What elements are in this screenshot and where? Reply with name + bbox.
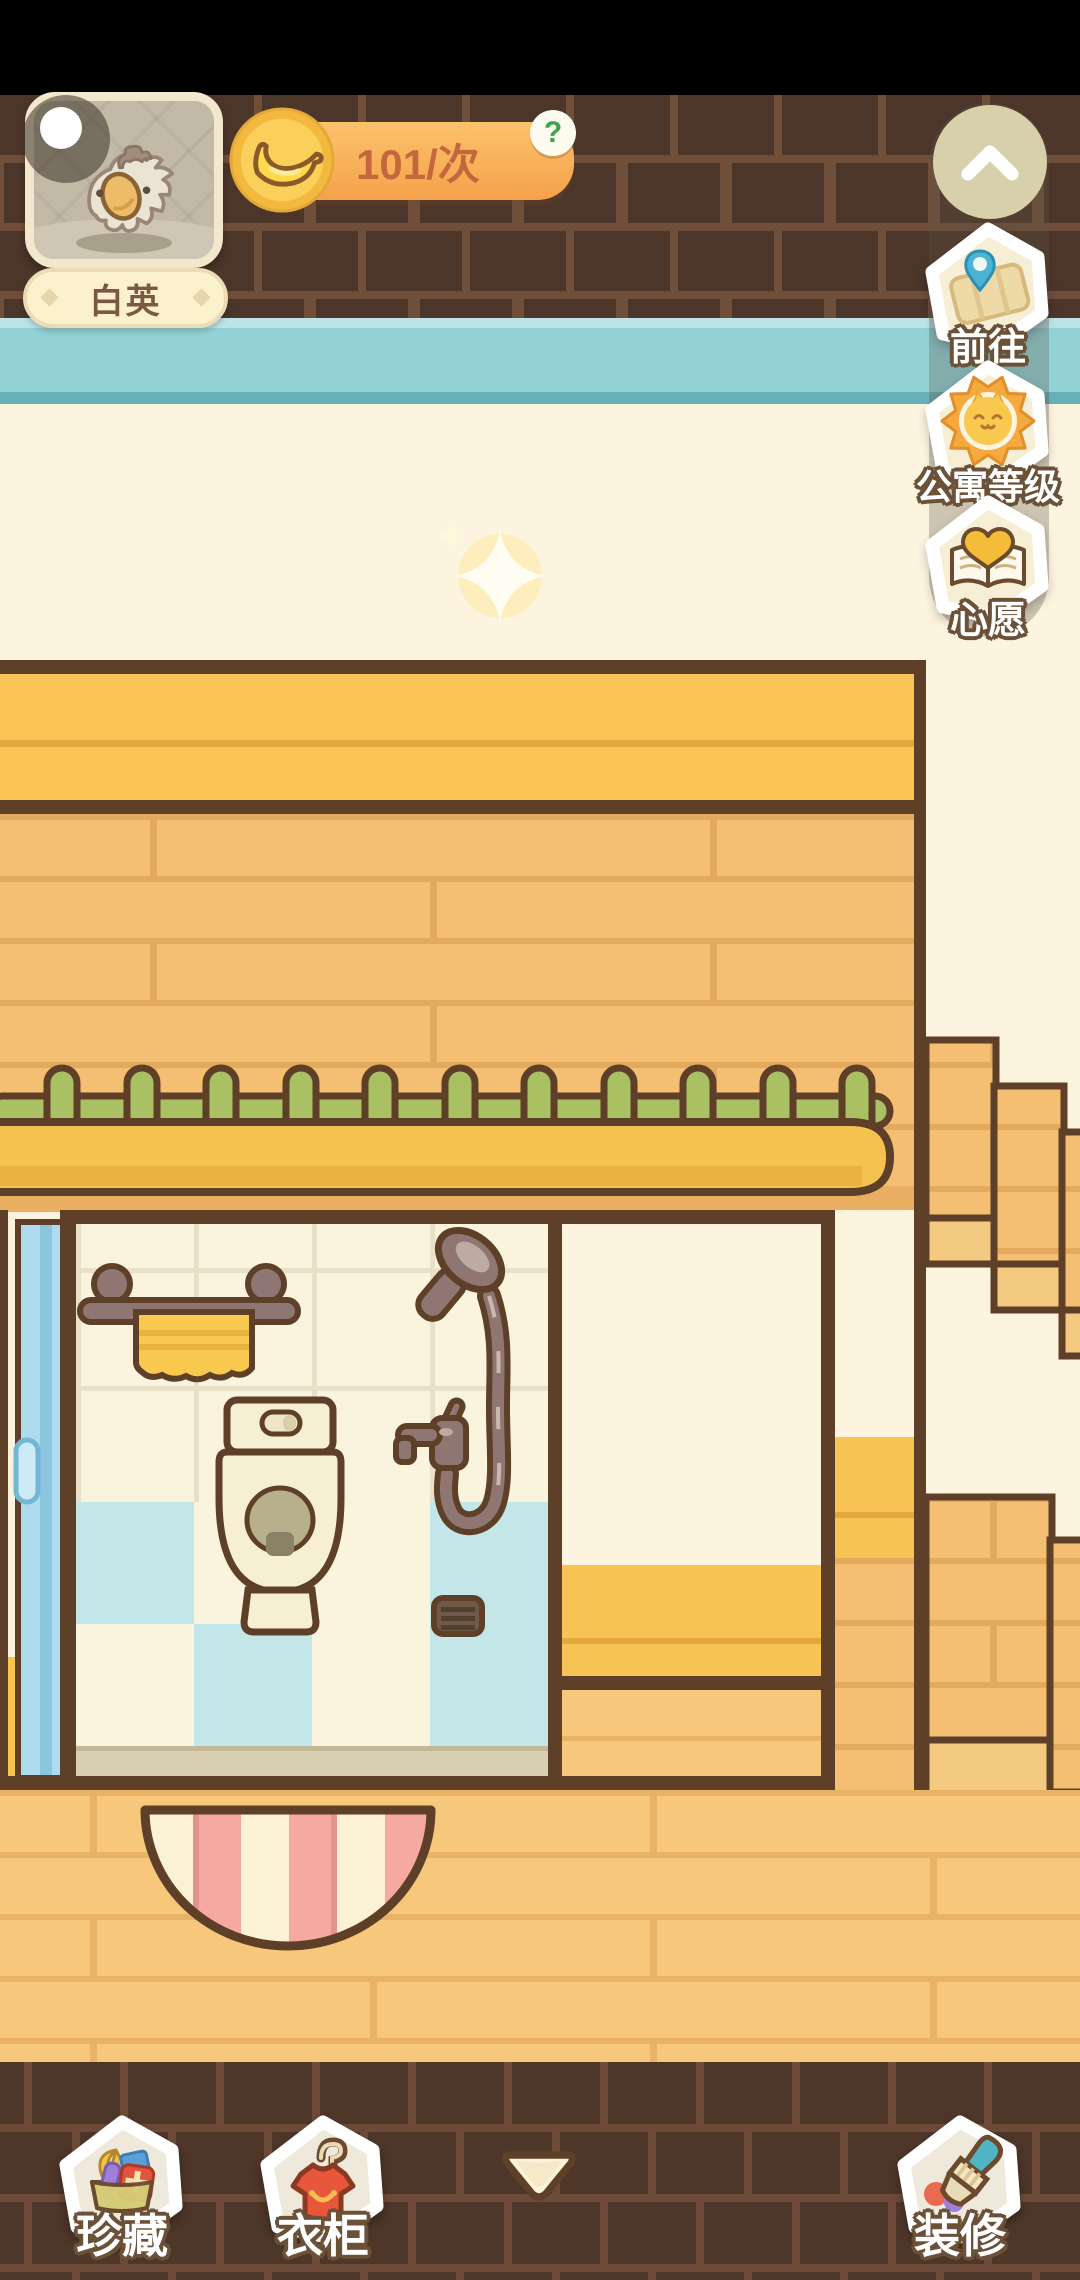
floor-drain	[434, 1598, 482, 1634]
door-handle	[16, 1440, 38, 1502]
bottom-menu-label: 装修	[865, 2200, 1055, 2266]
player-name-plate: 白英	[23, 268, 228, 328]
banana-counter[interactable]: 101/次 ?	[238, 122, 574, 200]
collapse-button[interactable]	[933, 105, 1047, 219]
bottom-menu-label: 衣柜	[228, 2200, 418, 2266]
side-menu-item-wish[interactable]: 心愿	[908, 485, 1068, 655]
bathroom-interior	[76, 1218, 548, 1776]
awning	[0, 660, 926, 814]
chevron-up-icon	[940, 112, 1040, 212]
bathroom-section	[0, 1210, 914, 1790]
plate-diamond	[192, 288, 210, 306]
bottom-menu-label: 珍藏	[27, 2200, 217, 2266]
triangle-down-icon	[498, 2140, 580, 2212]
bottom-menu-wardrobe[interactable]: 衣柜	[248, 2105, 398, 2260]
side-menu-label: 心愿	[908, 589, 1068, 644]
moon-indicator-icon	[22, 95, 110, 183]
inner-wall-panel	[562, 1224, 821, 1776]
bottom-menu-collection[interactable]: 珍藏	[47, 2105, 197, 2260]
player-avatar-card[interactable]	[25, 92, 223, 268]
player-name: 白英	[90, 274, 162, 323]
bottom-menu-decorate[interactable]: 装修	[885, 2105, 1035, 2260]
outer-wall-panel	[835, 1210, 914, 1790]
help-button[interactable]: ?	[530, 110, 576, 156]
plate-diamond	[40, 288, 58, 306]
banana-coin-icon	[228, 106, 336, 214]
hide-panel-button[interactable]	[498, 2140, 580, 2212]
banana-count-text: 101/次	[356, 122, 480, 200]
wish-book-icon	[952, 529, 1024, 586]
game-screen: 白英 101/次 ? 前往	[0, 0, 1080, 2280]
